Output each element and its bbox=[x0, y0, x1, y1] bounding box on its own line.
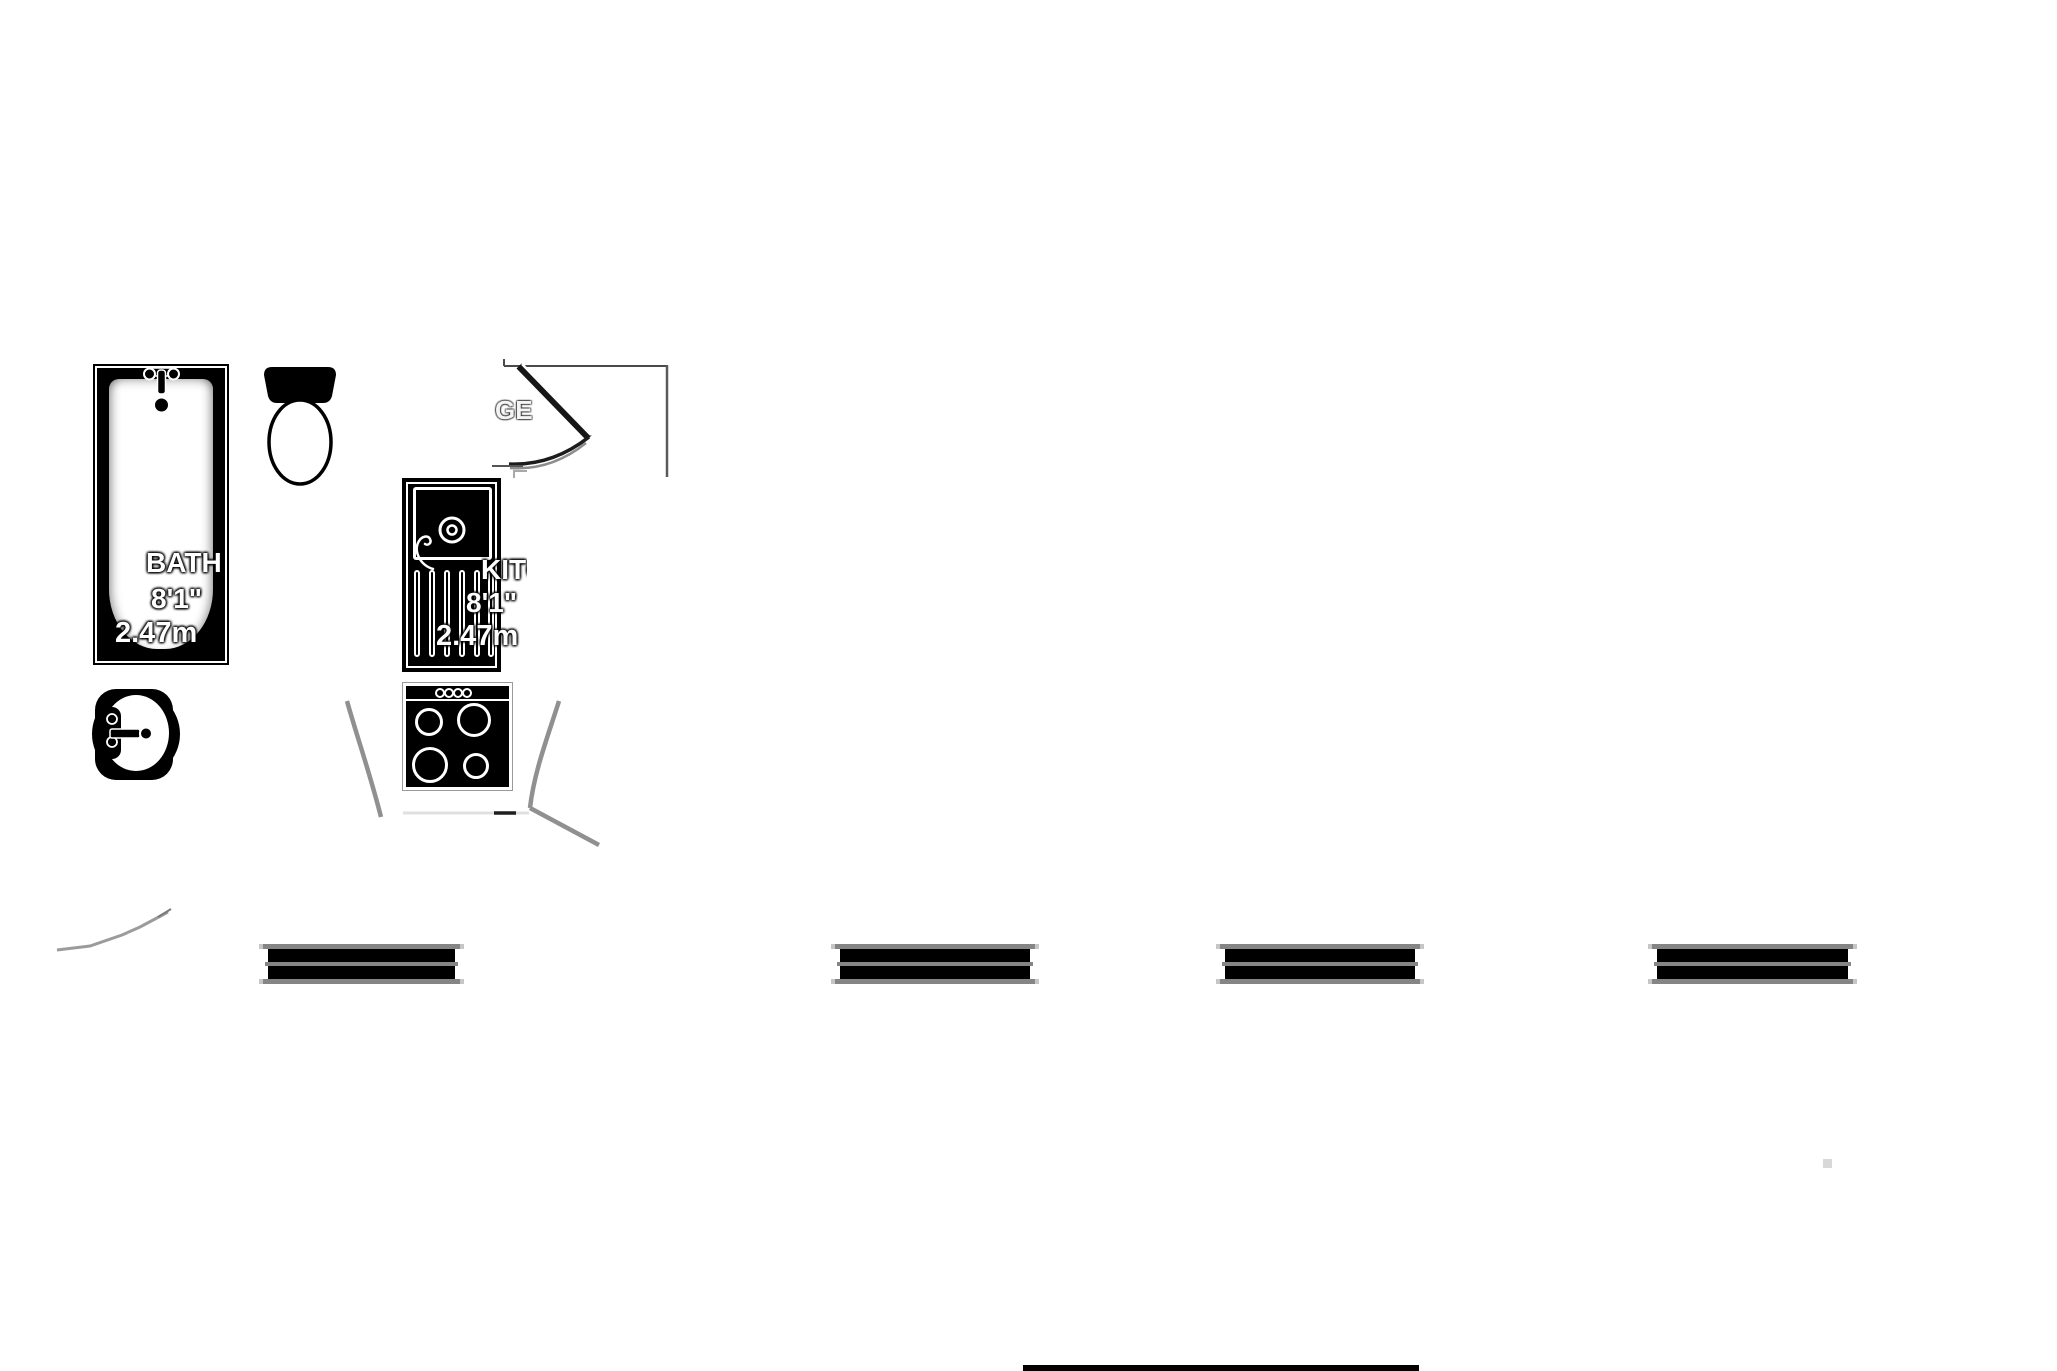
window-symbol bbox=[831, 944, 1039, 984]
wall-line bbox=[1023, 1365, 1419, 1371]
floor-plan: BATH 8'1" 2.47m KITCHEN 8'1" 2.47m GE bbox=[0, 0, 2057, 1371]
bath-size-imperial: 8'1" bbox=[151, 585, 202, 613]
sink-bowl bbox=[413, 487, 492, 560]
hob-panel-divider bbox=[406, 699, 509, 701]
burner-icon bbox=[457, 703, 491, 737]
window-symbol bbox=[1648, 944, 1857, 984]
burner-icon bbox=[463, 753, 489, 779]
window-symbol bbox=[1216, 944, 1424, 984]
kitchen-room-label: KITCHEN bbox=[481, 556, 527, 584]
drainer-rib bbox=[414, 570, 420, 657]
cooker-hob-icon bbox=[403, 683, 512, 790]
kitchen-size-metric: 2.47m bbox=[436, 622, 518, 651]
plan-overlay bbox=[0, 0, 2057, 1371]
window-symbol bbox=[259, 944, 464, 984]
bath-size-metric: 2.47m bbox=[115, 619, 197, 648]
faint-wall-line bbox=[57, 909, 171, 950]
drainer-rib bbox=[429, 570, 435, 657]
wash-basin-icon bbox=[92, 689, 180, 780]
kitchen-size-imperial: 8'1" bbox=[466, 589, 517, 617]
hob-knob-icon bbox=[462, 688, 472, 698]
artifact-dot bbox=[1823, 1159, 1832, 1168]
toilet-icon bbox=[264, 367, 336, 484]
stairs-label-fragment: GE bbox=[495, 397, 533, 423]
burner-icon bbox=[415, 708, 443, 736]
burner-icon bbox=[412, 747, 448, 783]
kitchen-label-clip: KITCHEN bbox=[481, 556, 527, 588]
bath-room-label: BATH bbox=[146, 549, 222, 577]
